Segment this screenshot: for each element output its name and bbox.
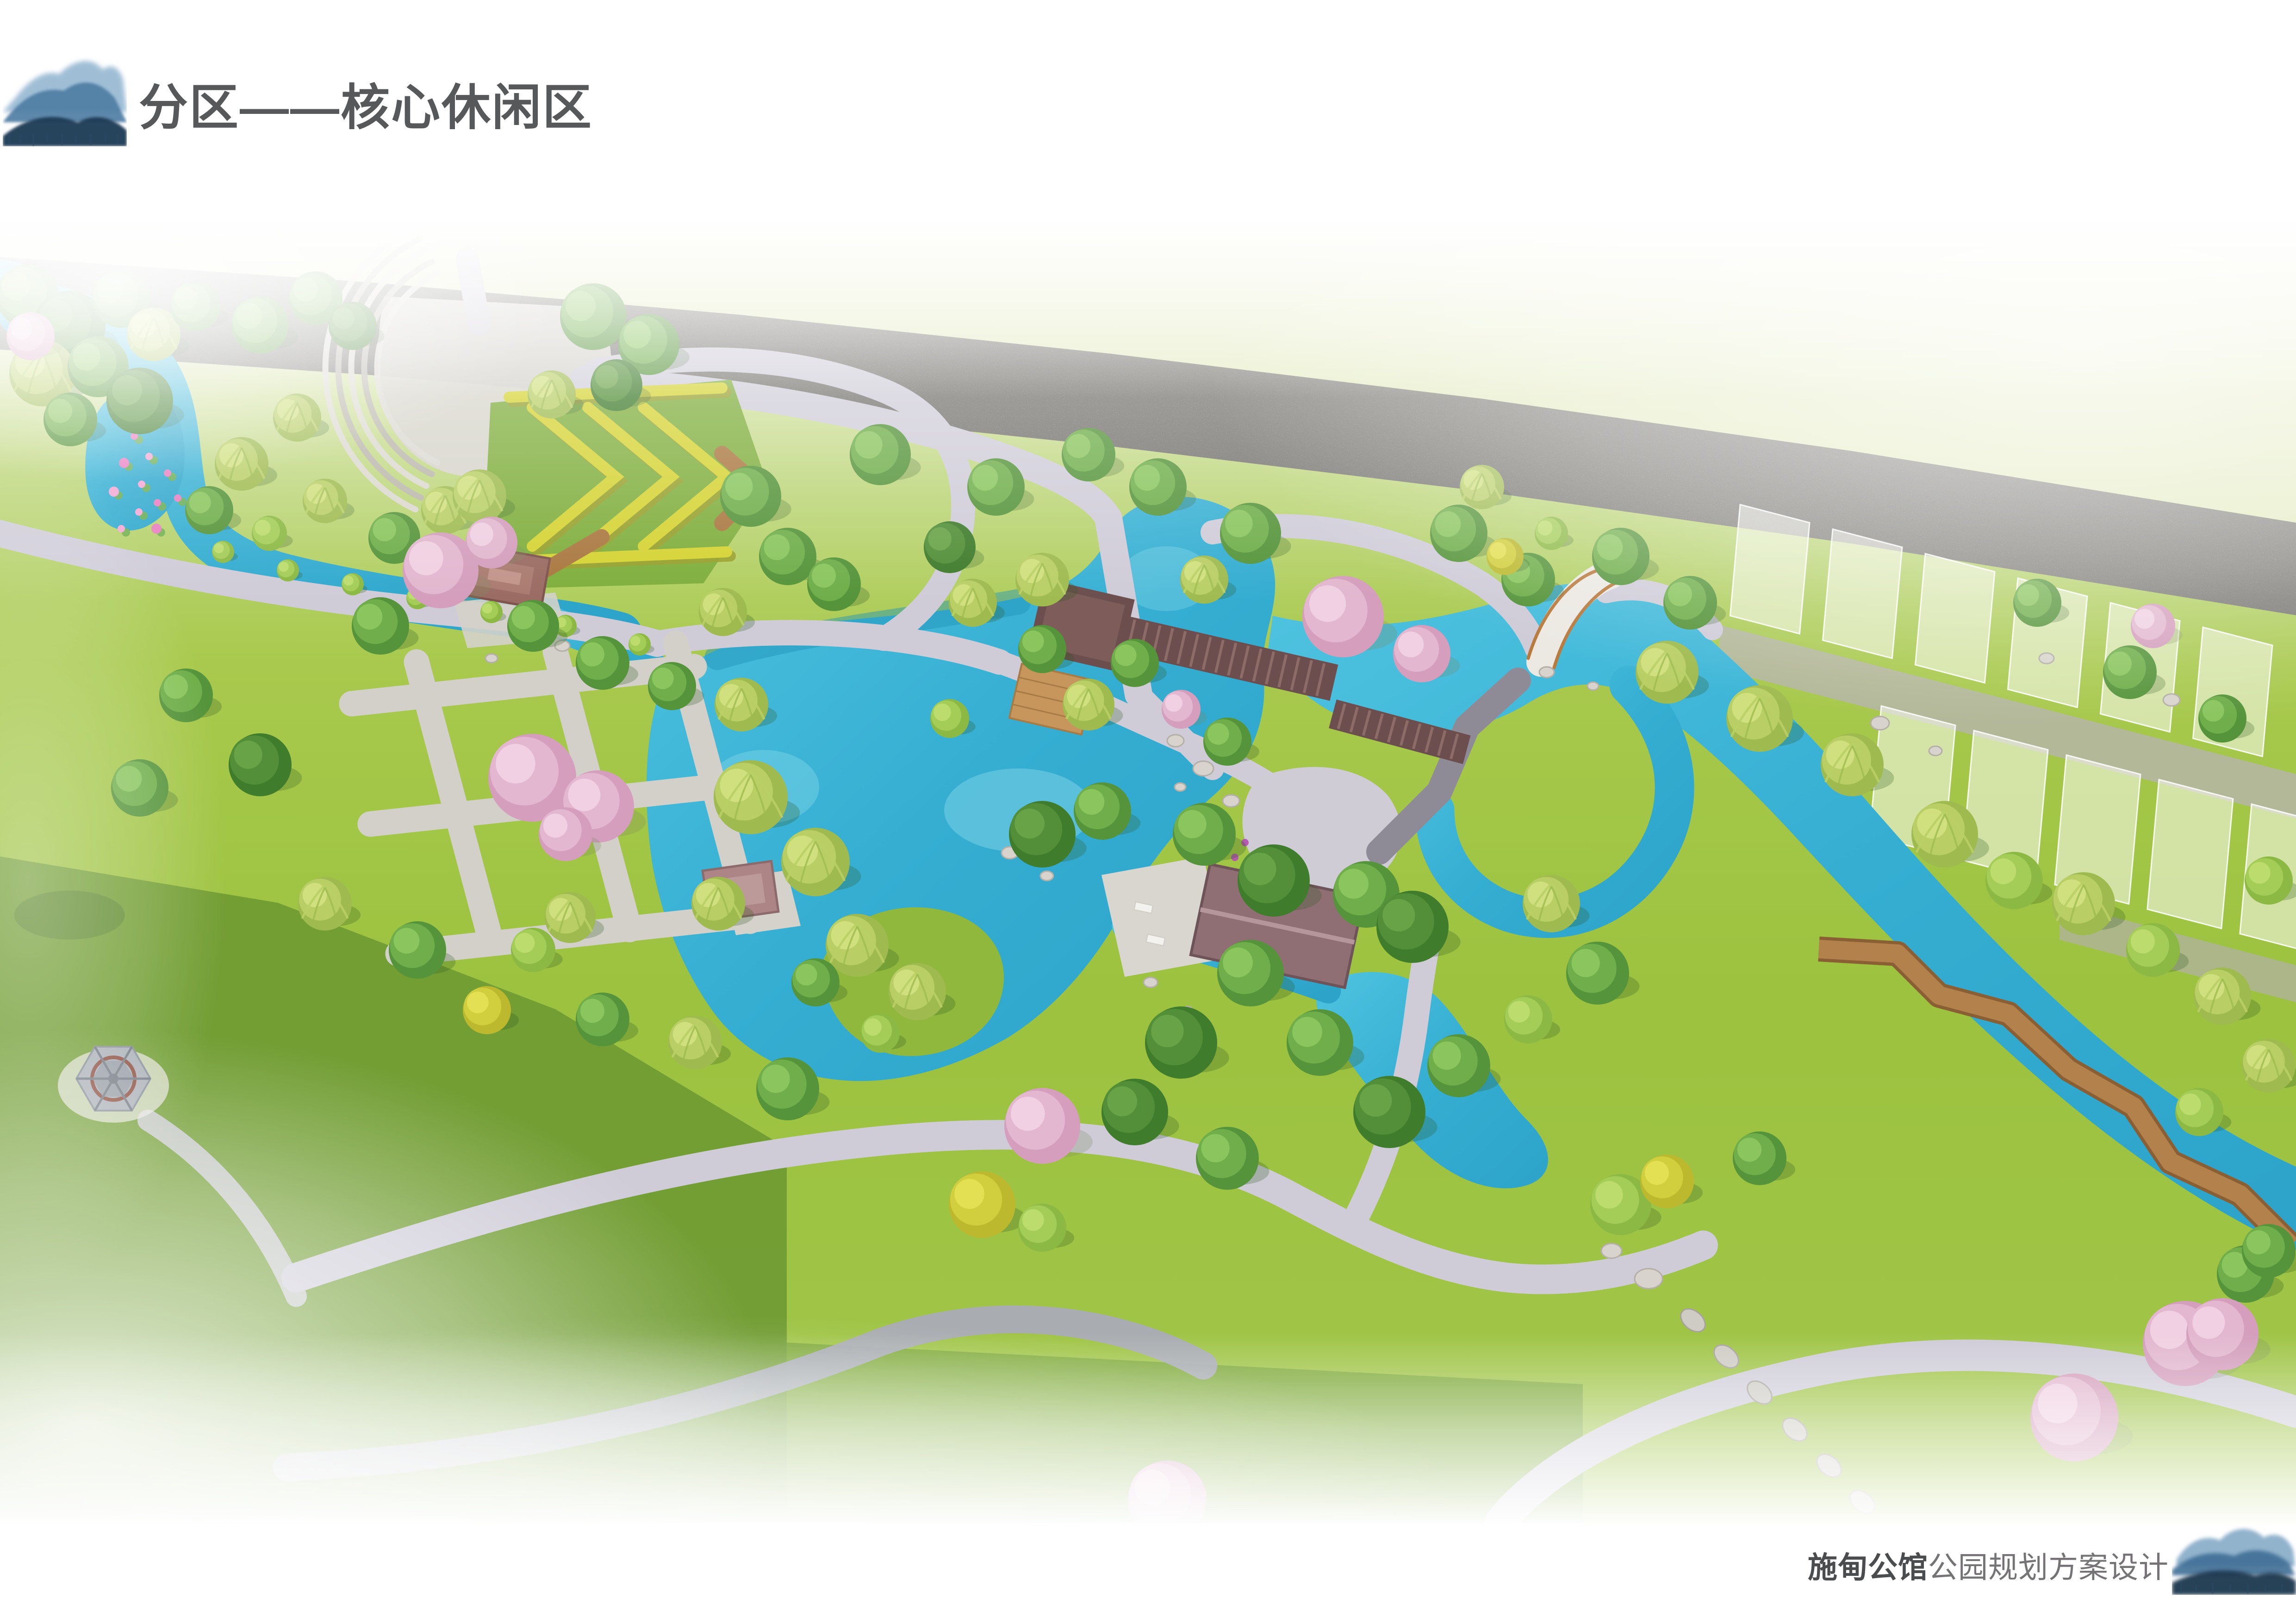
ink-mountain-logo bbox=[3, 43, 127, 146]
project-name: 施甸公馆 bbox=[1808, 1551, 1928, 1584]
ink-mountain-stamp bbox=[2172, 1515, 2296, 1595]
doc-type: 公园规划方案设计 bbox=[1928, 1551, 2169, 1584]
presentation-slide: 分区——核心休闲区 bbox=[0, 0, 2296, 1624]
footer-title: 施甸公馆公园规划方案设计 bbox=[1808, 1544, 2169, 1587]
page-title: 分区——核心休闲区 bbox=[139, 68, 593, 139]
slide-footer: 施甸公馆公园规划方案设计 bbox=[1648, 1507, 2296, 1599]
park-aerial-render bbox=[0, 222, 2296, 1523]
